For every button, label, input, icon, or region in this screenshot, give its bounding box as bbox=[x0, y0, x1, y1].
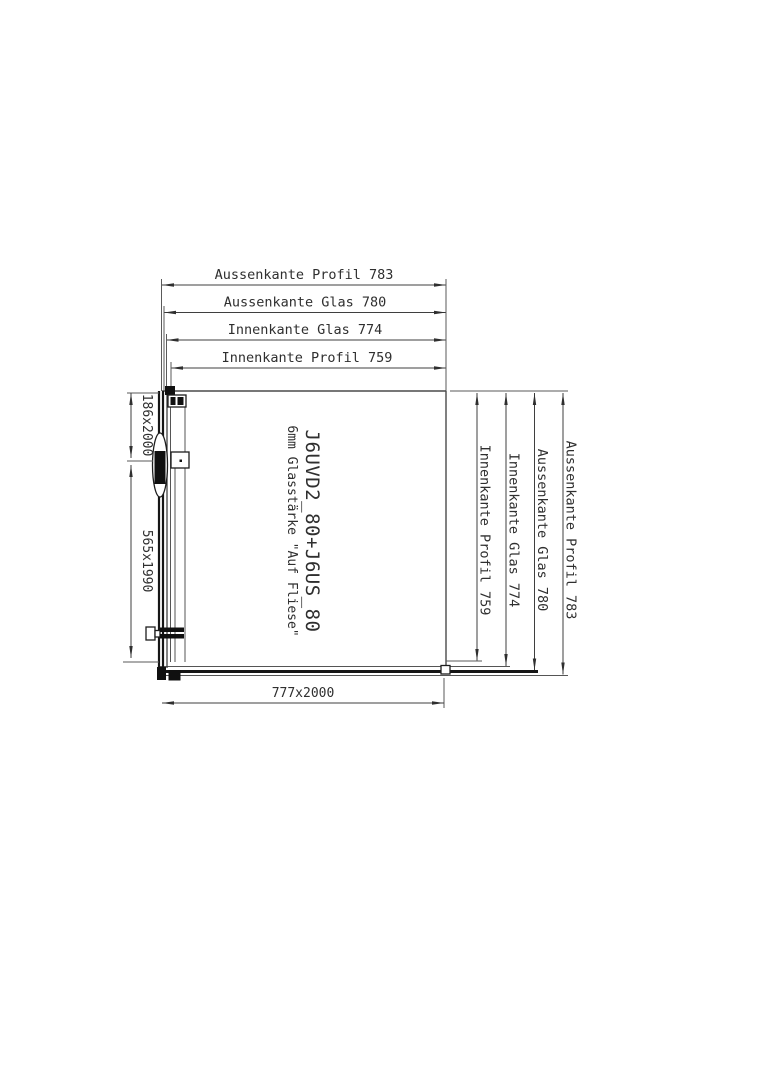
left-dimension-label-186x2000: 186x2000 bbox=[139, 394, 154, 457]
hinge-body bbox=[155, 451, 166, 484]
right-dimension-label-aussenkante-glas-780: Aussenkante Glas 780 bbox=[534, 449, 550, 612]
knob-stem bbox=[155, 631, 160, 638]
foot-bracket-block bbox=[169, 670, 181, 681]
top-dimension-label-innenkante-glas-774: Innenkante Glas 774 bbox=[228, 322, 382, 338]
top-dimension-label-aussenkante-profil-783: Aussenkante Profil 783 bbox=[215, 267, 394, 283]
foot-profile-block bbox=[157, 667, 166, 680]
hinge-clamp-screw-dot bbox=[180, 460, 183, 463]
wall-bracket-right bbox=[441, 666, 450, 675]
shower-enclosure-plan-drawing: Aussenkante Profil 783 Aussenkante Glas … bbox=[0, 0, 764, 1080]
top-dimension-label-aussenkante-glas-780: Aussenkante Glas 780 bbox=[224, 295, 387, 311]
technical-drawing-page: Aussenkante Profil 783 Aussenkante Glas … bbox=[0, 0, 764, 1080]
knob-mount-bar bbox=[160, 628, 184, 633]
page-background bbox=[0, 0, 764, 1080]
right-dimension-label-aussenkante-profil-783: Aussenkante Profil 783 bbox=[563, 441, 579, 620]
right-dimension-label-innenkante-profil-759: Innenkante Profil 759 bbox=[477, 445, 493, 616]
bottom-dimension-label-777x2000: 777x2000 bbox=[272, 686, 335, 701]
product-code-label: J6UVD2_80+J6US_80 bbox=[301, 430, 323, 633]
right-dimension-label-innenkante-glas-774: Innenkante Glas 774 bbox=[506, 453, 522, 607]
left-dimension-label-565x1990: 565x1990 bbox=[139, 530, 154, 593]
product-annotation: J6UVD2_80+J6US_80 6mm Glasstärke "Auf Fl… bbox=[284, 425, 323, 636]
knob-mount-bar bbox=[160, 634, 184, 639]
glass-thickness-label: 6mm Glasstärke "Auf Fliese" bbox=[284, 425, 299, 636]
top-dimension-label-innenkante-profil-759: Innenkante Profil 759 bbox=[222, 350, 393, 366]
hinge-top-bracket bbox=[165, 386, 175, 395]
hinge-top-screw bbox=[171, 397, 176, 405]
hinge-top-screw bbox=[178, 397, 184, 405]
knob-cap bbox=[146, 627, 155, 640]
